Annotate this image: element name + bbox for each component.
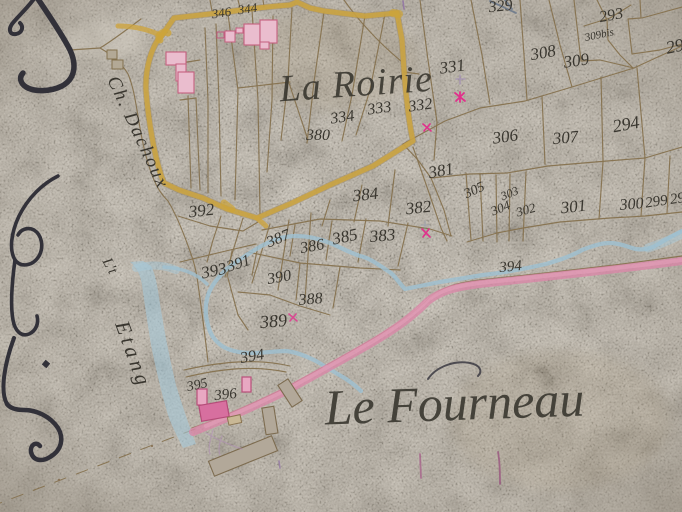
svg-text:309: 309 [561,49,590,72]
svg-text:384: 384 [351,184,380,206]
svg-text:344: 344 [236,0,259,17]
svg-text:394: 394 [498,258,523,276]
svg-text:29: 29 [664,34,682,57]
svg-text:383: 383 [368,225,396,246]
svg-text:392: 392 [187,200,216,222]
svg-text:329: 329 [487,0,514,16]
svg-text:331: 331 [437,55,466,78]
svg-text:307: 307 [551,127,581,148]
svg-text:396: 396 [213,386,239,404]
svg-text:346: 346 [210,4,233,22]
svg-text:388: 388 [297,290,323,309]
svg-text:334: 334 [328,107,355,127]
svg-text:29: 29 [669,190,682,208]
svg-text:301: 301 [559,196,587,218]
svg-text:Le Fourneau: Le Fourneau [323,370,585,435]
svg-text:382: 382 [404,197,433,219]
svg-text:299: 299 [644,192,669,211]
svg-text:380: 380 [305,127,330,144]
svg-text:389: 389 [258,310,288,332]
svg-text:306: 306 [490,125,519,148]
svg-text:300: 300 [618,195,644,214]
